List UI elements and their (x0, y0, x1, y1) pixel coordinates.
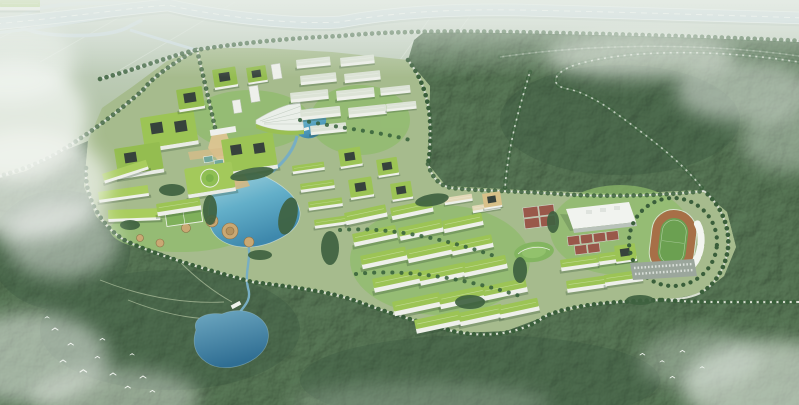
rendering-viewport (0, 0, 799, 405)
atmospheric-haze (0, 0, 799, 78)
campus-aerial-rendering (0, 0, 799, 405)
